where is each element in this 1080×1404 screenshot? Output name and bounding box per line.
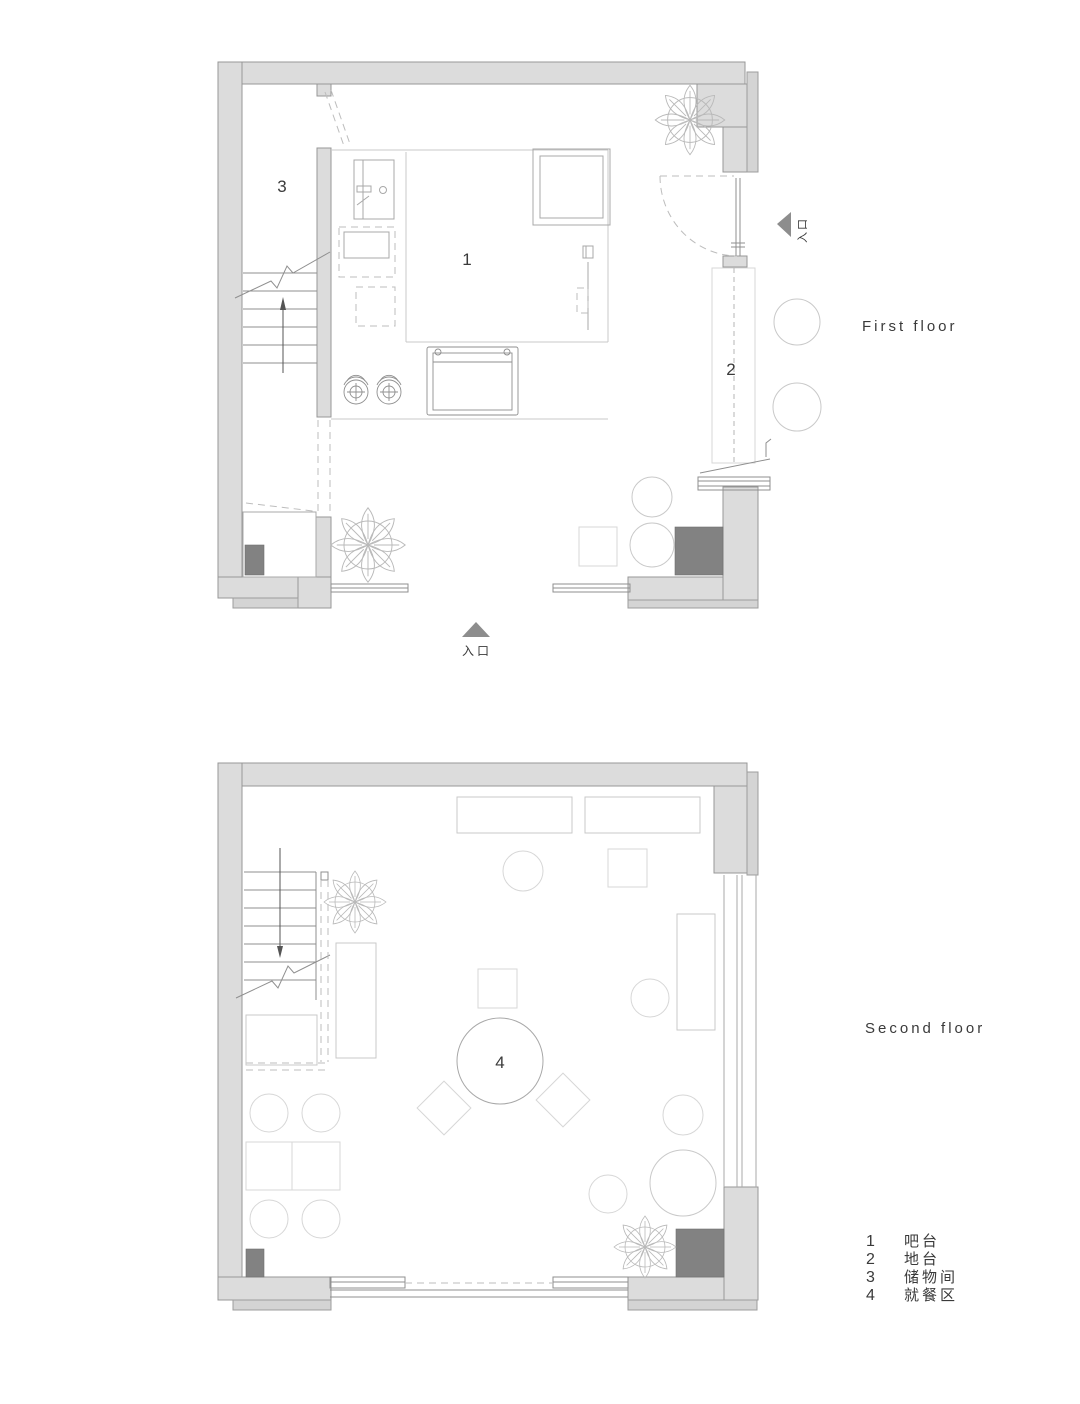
legend-num: 2 — [866, 1251, 875, 1268]
entrance-marker: 入口 — [462, 622, 492, 658]
stool — [250, 1200, 288, 1238]
entrance-arrow-icon — [462, 622, 490, 637]
stool — [589, 1175, 627, 1213]
column — [245, 545, 264, 575]
stairs-first-floor — [235, 252, 330, 373]
stool — [663, 1095, 703, 1135]
legend-item: 2 地台 — [866, 1251, 940, 1268]
column — [676, 1229, 724, 1277]
room-label-dining: 4 — [495, 1053, 504, 1072]
bench — [457, 797, 572, 833]
floor-cushion — [536, 1073, 590, 1127]
stool — [302, 1094, 340, 1132]
round-table — [650, 1150, 716, 1216]
second-floor-plan: 4 Second floor — [218, 763, 985, 1310]
legend-item: 4 就餐区 — [866, 1287, 958, 1304]
bar-counter — [331, 149, 610, 419]
bar-fixture — [577, 246, 593, 330]
bar-equipment-box — [533, 149, 610, 225]
bench — [336, 943, 376, 1058]
first-floor-windows — [331, 584, 630, 592]
low-table — [246, 1142, 292, 1190]
service-table — [427, 347, 518, 415]
floor-plan-page: 3 1 2 入口 入口 First floor — [0, 0, 1080, 1404]
stool — [631, 979, 669, 1017]
legend-num: 3 — [866, 1269, 875, 1286]
legend-label: 储物间 — [904, 1269, 958, 1286]
entry-door-swing — [660, 176, 745, 256]
plant-icon — [655, 85, 724, 154]
floor-cushion — [478, 969, 517, 1008]
stair-up-arrow — [280, 297, 286, 373]
plant-icon — [614, 1216, 676, 1278]
stool — [302, 1200, 340, 1238]
first-floor-seating — [579, 477, 674, 567]
storage-door-leaf — [325, 90, 350, 146]
legend-label: 就餐区 — [904, 1287, 958, 1304]
bar-equipment-dashed — [339, 227, 395, 326]
stairs-second-floor — [236, 848, 330, 1070]
legend-item: 3 储物间 — [866, 1269, 958, 1286]
room-label-storage: 3 — [277, 177, 286, 196]
window-flag — [766, 439, 771, 457]
room-label-bar: 1 — [462, 250, 471, 269]
first-floor-plan: 3 1 2 入口 入口 First floor — [218, 62, 958, 658]
floor-plans-drawing: 3 1 2 入口 入口 First floor — [0, 0, 1080, 1404]
entrance-label: 入口 — [462, 644, 492, 658]
bar-sink — [354, 160, 394, 219]
bar-stool — [344, 375, 368, 404]
platform-strip — [698, 268, 771, 490]
plant-icon — [331, 508, 405, 582]
legend-label: 吧台 — [904, 1233, 940, 1250]
bar-stool — [377, 375, 401, 404]
second-floor-side-window — [724, 875, 756, 1187]
column — [246, 1249, 264, 1277]
plant-icon — [324, 871, 386, 933]
legend-item: 1 吧台 — [866, 1233, 940, 1250]
first-floor-caption: First floor — [862, 318, 958, 335]
legend-label: 地台 — [904, 1251, 940, 1268]
legend-num: 4 — [866, 1287, 875, 1304]
outdoor-tables — [773, 299, 821, 431]
bench — [585, 797, 700, 833]
stool — [250, 1094, 288, 1132]
second-floor-walls — [218, 763, 758, 1310]
first-floor-walls — [218, 62, 758, 608]
round-table — [503, 851, 543, 891]
floor-cushion — [417, 1081, 471, 1135]
legend: 1 吧台 2 地台 3 储物间 4 就餐区 — [866, 1233, 958, 1304]
floor-cushion — [608, 849, 647, 887]
bench — [677, 914, 715, 1030]
second-floor-bottom-window — [330, 1277, 628, 1297]
stair-down-arrow — [277, 848, 283, 958]
second-floor-caption: Second floor — [865, 1020, 985, 1037]
legend-num: 1 — [866, 1233, 875, 1250]
low-table — [292, 1142, 340, 1190]
side-entrance-arrow-icon — [777, 212, 791, 237]
side-entrance-label: 入口 — [797, 217, 809, 243]
room-label-platform: 2 — [726, 360, 735, 379]
side-entrance-marker: 入口 — [777, 212, 809, 243]
column — [675, 527, 723, 575]
